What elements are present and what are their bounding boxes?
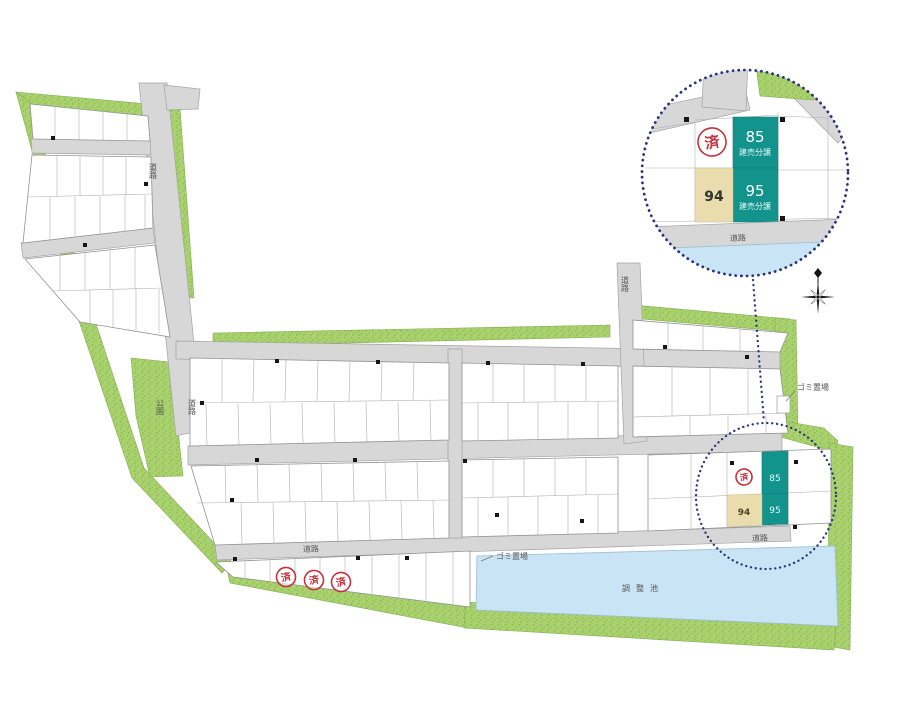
inset-plot-95-type: 建売分譲 bbox=[739, 201, 771, 211]
plot-94-number: 94 bbox=[738, 508, 751, 518]
inset-road-up bbox=[702, 57, 748, 111]
road-label-midleft: 道路 bbox=[188, 398, 197, 415]
plot-85-number: 85 bbox=[769, 474, 780, 484]
pond-label: 調整池 bbox=[622, 583, 664, 593]
magnifier-inset: 85 建売分譲 95 建売分譲 94 道路 済 bbox=[641, 57, 852, 288]
compass-icon bbox=[801, 268, 835, 314]
inset-plot-85-number: 85 bbox=[745, 128, 764, 146]
block-A-row3 bbox=[25, 245, 170, 337]
block-C2 bbox=[462, 457, 618, 537]
block-C1 bbox=[191, 461, 449, 545]
plot-85-teal bbox=[762, 451, 788, 494]
road-label-topleft: 道路 bbox=[149, 162, 158, 179]
block-B1 bbox=[190, 358, 449, 446]
block-A-row2 bbox=[23, 155, 153, 243]
road-label-bottom-right: 道路 bbox=[752, 532, 768, 543]
inset-plot-85-type: 建売分譲 bbox=[739, 147, 771, 157]
road-label-right-vertical: 道路 bbox=[621, 275, 630, 292]
site-plan-map: 85 95 94 済 調整池 済 済 済 道路 道路 公園 道路 道路 道路 ゴ… bbox=[0, 0, 900, 719]
inset-plot-95-number: 95 bbox=[745, 182, 764, 200]
block-B3 bbox=[633, 366, 788, 437]
inset-road-label: 道路 bbox=[730, 232, 746, 243]
road-vertical-mid bbox=[448, 349, 462, 538]
inset-plot-94-number: 94 bbox=[704, 189, 724, 205]
road-topleft-flare bbox=[164, 85, 200, 110]
park-label: 公園 bbox=[156, 399, 165, 416]
inset-green-patch bbox=[756, 66, 814, 100]
garbage-label: ゴミ置場 bbox=[496, 551, 528, 561]
road-label-bottom: 道路 bbox=[303, 543, 319, 554]
plot-95-number: 95 bbox=[769, 506, 780, 516]
garbage-label: ゴミ置場 bbox=[797, 382, 829, 392]
